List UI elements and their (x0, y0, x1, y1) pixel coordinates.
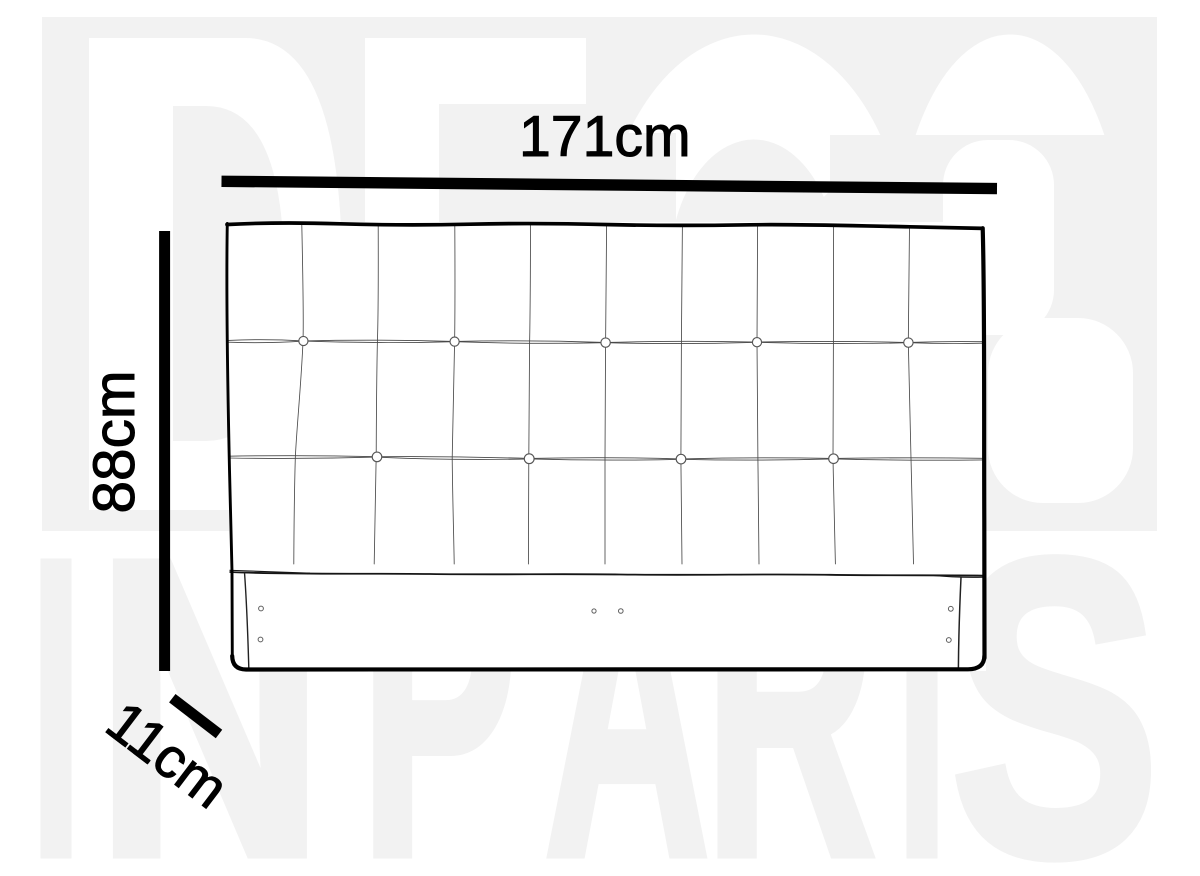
svg-text:I: I (30, 471, 82, 876)
svg-text:171cm: 171cm (519, 105, 691, 169)
svg-text:88cm: 88cm (82, 370, 147, 513)
